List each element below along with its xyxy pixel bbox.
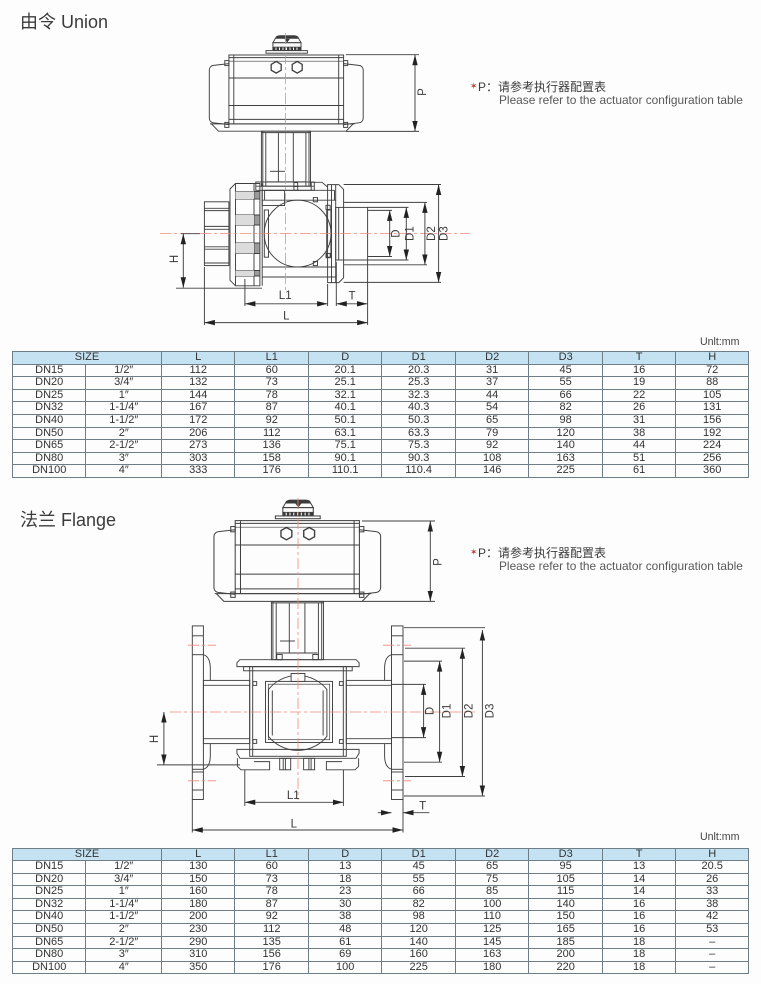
svg-text:D: D xyxy=(425,707,437,715)
svg-text:D3: D3 xyxy=(439,226,451,241)
svg-text:D1: D1 xyxy=(404,226,416,241)
svg-text:T: T xyxy=(419,801,426,813)
svg-text:L1: L1 xyxy=(287,790,300,802)
svg-text:H: H xyxy=(149,735,161,743)
svg-text:L1: L1 xyxy=(279,290,292,302)
svg-text:D2: D2 xyxy=(464,704,476,719)
svg-text:P: P xyxy=(433,558,445,566)
svg-text:D: D xyxy=(391,229,403,237)
svg-text:D3: D3 xyxy=(485,704,497,719)
svg-text:P: P xyxy=(417,88,429,96)
svg-text:L: L xyxy=(291,818,298,830)
svg-text:L: L xyxy=(283,311,290,323)
svg-text:H: H xyxy=(169,255,181,263)
svg-text:T: T xyxy=(348,291,355,303)
svg-text:D1: D1 xyxy=(442,704,454,719)
svg-text:D2: D2 xyxy=(426,226,438,241)
